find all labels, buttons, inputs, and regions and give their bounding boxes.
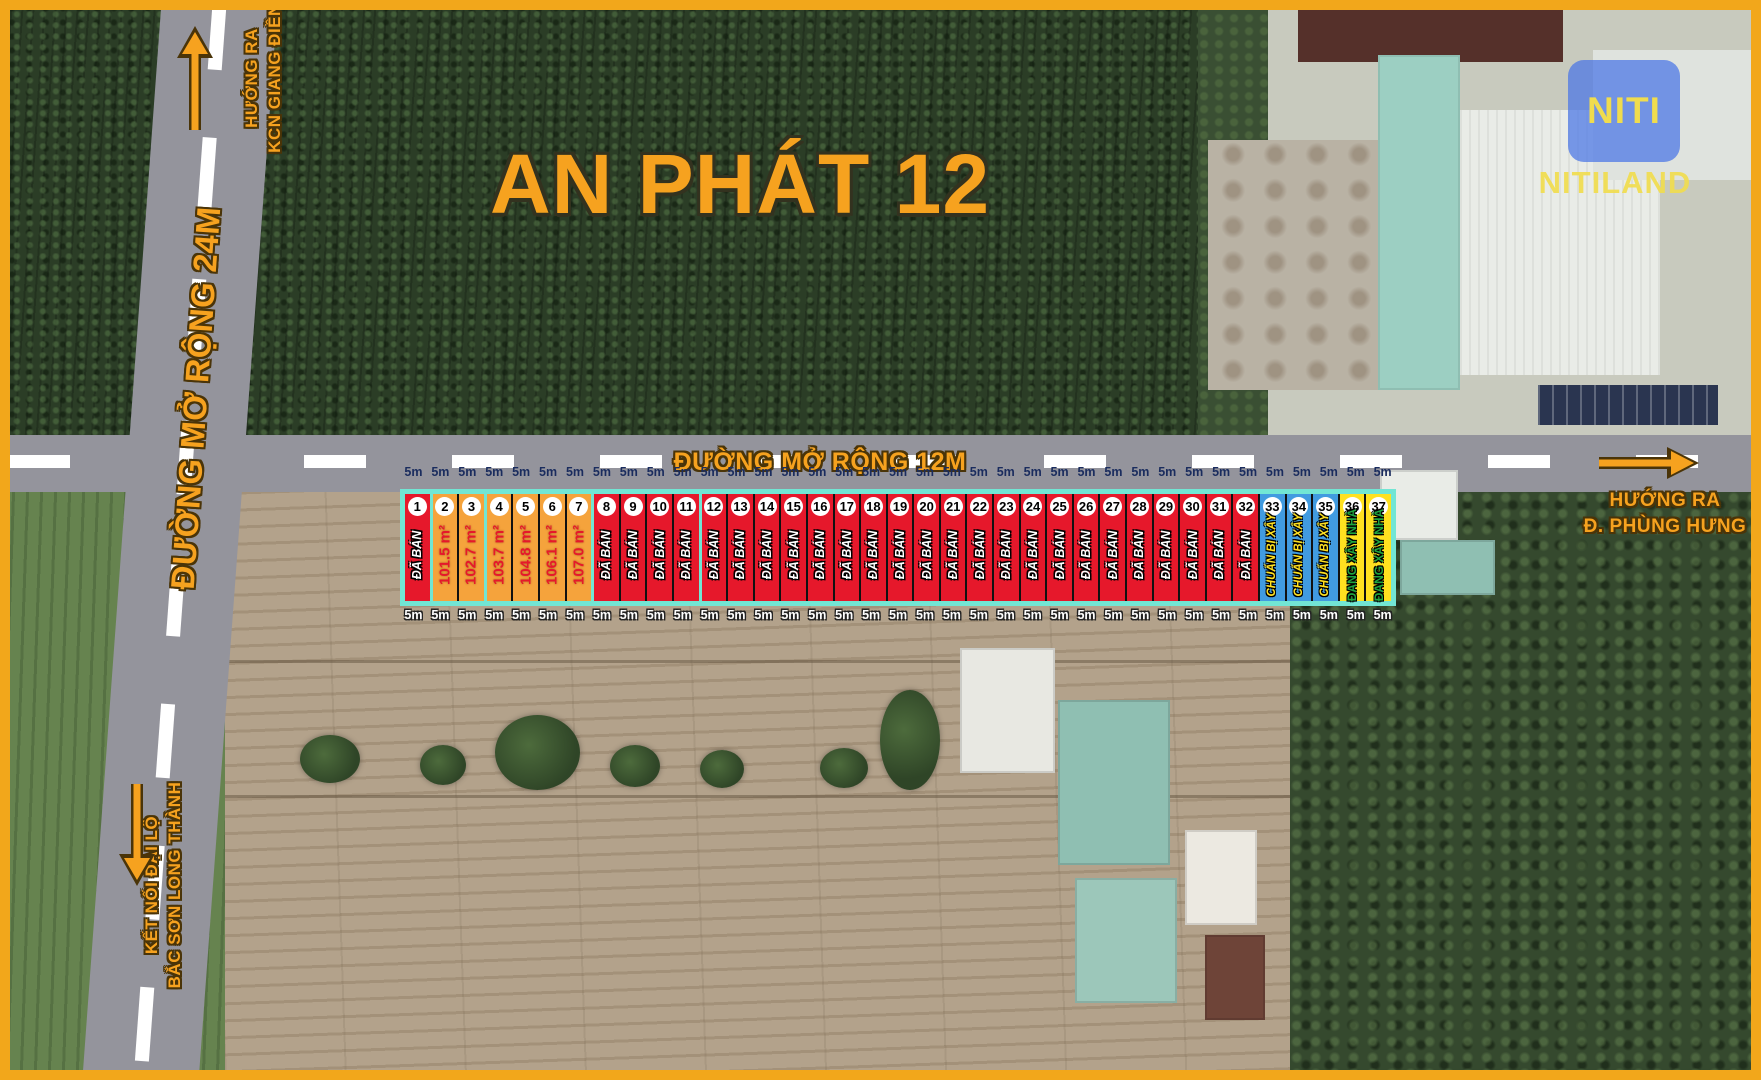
frontage-label: 5m (1019, 465, 1046, 479)
frontage-label: 5m (1127, 608, 1154, 622)
frontage-label: 5m (427, 465, 454, 479)
frontage-label: 5m (1046, 608, 1073, 622)
plot-9: 9ĐÃ BÁN (621, 494, 646, 601)
brand-name: NITILAND (1500, 165, 1730, 201)
arrow-down-icon (114, 780, 160, 890)
plot-status-label: ĐANG XÂY NHÀ (1372, 509, 1386, 601)
frontage-label: 5m (562, 465, 589, 479)
frontage-label: 5m (1315, 465, 1342, 479)
building-roof (1298, 0, 1563, 62)
frontage-label: 5m (508, 608, 535, 622)
plot-status-label: ĐÃ BÁN (1079, 531, 1093, 580)
plot-11: 11ĐÃ BÁN (674, 494, 699, 601)
plot-number: 10 (650, 497, 669, 516)
plot-number: 1 (408, 497, 427, 516)
frontage-label: 5m (1208, 608, 1235, 622)
frontage-label: 5m (777, 465, 804, 479)
frontage-label: 5m (615, 465, 642, 479)
plot-number: 5 (516, 497, 535, 516)
frontage-label: 5m (1073, 465, 1100, 479)
house-roof (1075, 878, 1177, 1003)
plot-number: 17 (837, 497, 856, 516)
frontage-label: 5m (938, 465, 965, 479)
plot-area-label: 106.1 m² (544, 525, 561, 585)
frontage-label: 5m (669, 465, 696, 479)
frontage-label: 5m (804, 465, 831, 479)
plot-26: 26ĐÃ BÁN (1074, 494, 1099, 601)
frontage-label: 5m (696, 465, 723, 479)
plot-number: 12 (704, 497, 723, 516)
plot-35: 35CHUẨN BỊ XÂY (1313, 494, 1338, 601)
plot-number: 21 (944, 497, 963, 516)
plot-status-label: ĐÃ BÁN (999, 531, 1013, 580)
frontage-label: 5m (588, 465, 615, 479)
frontage-label: 5m (912, 465, 939, 479)
plot-29: 29ĐÃ BÁN (1154, 494, 1179, 601)
tree-clump (495, 715, 580, 790)
plot-number: 25 (1050, 497, 1069, 516)
plot-status-label: CHUẨN BỊ XÂY (1319, 513, 1331, 596)
frontage-label: 5m (912, 608, 939, 622)
plot-number: 3 (462, 497, 481, 516)
plot-status-label: ĐÃ BÁN (973, 531, 987, 580)
plot-status-label: ĐÃ BÁN (813, 531, 827, 580)
plot-24: 24ĐÃ BÁN (1021, 494, 1046, 601)
plot-10: 10ĐÃ BÁN (647, 494, 672, 601)
frontage-label: 5m (454, 465, 481, 479)
plot-32: 32ĐÃ BÁN (1233, 494, 1258, 601)
plot-strip: 1ĐÃ BÁN2101.5 m²3102.7 m²4103.7 m²5104.8… (400, 489, 1396, 606)
frontage-label: 5m (454, 608, 481, 622)
plot-18: 18ĐÃ BÁN (861, 494, 886, 601)
frontage-label: 5m (1181, 465, 1208, 479)
plot-23: 23ĐÃ BÁN (994, 494, 1019, 601)
frontage-label: 5m (642, 465, 669, 479)
frontage-label: 5m (1073, 608, 1100, 622)
plot-2: 2101.5 m² (433, 494, 458, 601)
frontage-label: 5m (508, 465, 535, 479)
frontage-label: 5m (1154, 465, 1181, 479)
frontage-label: 5m (723, 465, 750, 479)
plot-status-label: ĐANG XÂY NHÀ (1345, 509, 1359, 601)
plot-5: 5104.8 m² (513, 494, 538, 601)
plot-status-label: ĐÃ BÁN (760, 531, 774, 580)
frontage-label: 5m (615, 608, 642, 622)
plot-status-label: ĐÃ BÁN (1186, 531, 1200, 580)
plot-13: 13ĐÃ BÁN (728, 494, 753, 601)
plot-number: 27 (1103, 497, 1122, 516)
field-boundary (225, 660, 1300, 663)
frontage-label: 5m (858, 465, 885, 479)
frontage-label: 5m (427, 608, 454, 622)
frontage-label: 5m (1019, 608, 1046, 622)
frontage-label: 5m (885, 465, 912, 479)
house-roof (1058, 700, 1170, 865)
plot-status-label: ĐÃ BÁN (599, 531, 613, 580)
frontage-label: 5m (696, 608, 723, 622)
frontage-label: 5m (831, 465, 858, 479)
frontage-label: 5m (858, 608, 885, 622)
plot-number: 29 (1156, 497, 1175, 516)
frontage-label: 5m (1288, 465, 1315, 479)
plot-21: 21ĐÃ BÁN (941, 494, 966, 601)
frontage-label: 5m (1342, 465, 1369, 479)
frontage-label: 5m (481, 608, 508, 622)
logo-text: NITI (1587, 90, 1661, 132)
arrow-right-icon (1595, 444, 1705, 482)
plot-28: 28ĐÃ BÁN (1127, 494, 1152, 601)
plot-status-label: ĐÃ BÁN (679, 531, 693, 580)
plot-number: 31 (1210, 497, 1229, 516)
frontage-label: 5m (723, 608, 750, 622)
frontage-label: 5m (562, 608, 589, 622)
plot-status-label: ĐÃ BÁN (866, 531, 880, 580)
project-title: AN PHÁT 12 (480, 138, 1000, 230)
concrete-yard (1208, 140, 1378, 390)
house-roof (960, 648, 1055, 773)
niti-logo: NITI (1568, 60, 1680, 162)
frontage-label: 5m (831, 608, 858, 622)
frontage-label: 5m (1046, 465, 1073, 479)
plot-status-label: ĐÃ BÁN (1106, 531, 1120, 580)
plot-27: 27ĐÃ BÁN (1100, 494, 1125, 601)
plot-status-label: ĐÃ BÁN (1159, 531, 1173, 580)
frontage-label: 5m (804, 608, 831, 622)
plot-number: 2 (435, 497, 454, 516)
plot-15: 15ĐÃ BÁN (781, 494, 806, 601)
plot-7: 7107.0 m² (567, 494, 592, 601)
plot-status-label: ĐÃ BÁN (893, 531, 907, 580)
plot-1: 1ĐÃ BÁN (405, 494, 430, 601)
frontage-label: 5m (669, 608, 696, 622)
frontage-label: 5m (1208, 465, 1235, 479)
frontage-label: 5m (588, 608, 615, 622)
frontage-label: 5m (777, 608, 804, 622)
plot-area-label: 103.7 m² (491, 525, 508, 585)
plot-14: 14ĐÃ BÁN (755, 494, 780, 601)
house-roof (1400, 540, 1495, 595)
plot-number: 6 (543, 497, 562, 516)
solar-panels (1538, 385, 1718, 425)
plot-status-label: ĐÃ BÁN (733, 531, 747, 580)
plot-number: 30 (1183, 497, 1202, 516)
plot-number: 18 (864, 497, 883, 516)
plot-8: 8ĐÃ BÁN (594, 494, 619, 601)
plot-status-label: ĐÃ BÁN (707, 531, 721, 580)
frontage-label: 5m (992, 465, 1019, 479)
plot-number: 15 (784, 497, 803, 516)
plot-status-label: CHUẨN BỊ XÂY (1293, 513, 1305, 596)
plot-number: 22 (970, 497, 989, 516)
plot-status-label: ĐÃ BÁN (626, 531, 640, 580)
frontage-label: 5m (535, 608, 562, 622)
frontage-row-top: 5m5m5m5m5m5m5m5m5m5m5m5m5m5m5m5m5m5m5m5m… (400, 465, 1396, 479)
house-roof (1185, 830, 1257, 925)
plot-status-label: ĐÃ BÁN (410, 531, 424, 580)
plot-status-label: ĐÃ BÁN (1026, 531, 1040, 580)
plot-6: 6106.1 m² (540, 494, 565, 601)
plot-status-label: CHUẨN BỊ XÂY (1266, 513, 1278, 596)
plot-19: 19ĐÃ BÁN (888, 494, 913, 601)
plot-status-label: ĐÃ BÁN (1239, 531, 1253, 580)
plot-34: 34CHUẨN BỊ XÂY (1287, 494, 1312, 601)
tree-clump (300, 735, 360, 783)
plot-20: 20ĐÃ BÁN (914, 494, 939, 601)
plot-number: 20 (917, 497, 936, 516)
frontage-label: 5m (1235, 465, 1262, 479)
frontage-label: 5m (535, 465, 562, 479)
frontage-label: 5m (1288, 608, 1315, 622)
plot-status-label: ĐÃ BÁN (1132, 531, 1146, 580)
frontage-label: 5m (1100, 608, 1127, 622)
frontage-label: 5m (750, 465, 777, 479)
plot-area-label: 101.5 m² (436, 525, 453, 585)
frontage-label: 5m (1100, 465, 1127, 479)
frontage-label: 5m (1315, 608, 1342, 622)
plot-17: 17ĐÃ BÁN (835, 494, 860, 601)
frontage-label: 5m (1154, 608, 1181, 622)
plot-number: 13 (731, 497, 750, 516)
direction-kcn-giang-dien: HƯỚNG RA KCN GIANG ĐIỀN (240, 3, 286, 153)
plot-status-label: ĐÃ BÁN (840, 531, 854, 580)
arrow-up-icon (172, 20, 218, 136)
plot-12: 12ĐÃ BÁN (702, 494, 727, 601)
plot-number: 7 (569, 497, 588, 516)
plot-number: 4 (490, 497, 509, 516)
plot-16: 16ĐÃ BÁN (808, 494, 833, 601)
plot-number: 14 (758, 497, 777, 516)
frontage-row-bottom: 5m5m5m5m5m5m5m5m5m5m5m5m5m5m5m5m5m5m5m5m… (400, 608, 1396, 622)
plot-number: 11 (677, 497, 696, 516)
tree-clump (610, 745, 660, 787)
frontage-label: 5m (1127, 465, 1154, 479)
plot-area-label: 104.8 m² (517, 525, 534, 585)
tree-clump (820, 748, 868, 788)
frontage-label: 5m (1369, 608, 1396, 622)
plot-31: 31ĐÃ BÁN (1207, 494, 1232, 601)
frontage-label: 5m (1262, 465, 1289, 479)
frontage-label: 5m (1181, 608, 1208, 622)
plot-37: 37ĐANG XÂY NHÀ (1366, 494, 1391, 601)
plot-number: 24 (1023, 497, 1042, 516)
frontage-label: 5m (992, 608, 1019, 622)
frontage-label: 5m (400, 608, 427, 622)
plot-number: 8 (597, 497, 616, 516)
site-plan-canvas: AN PHÁT 12 NITI NITILAND HƯỚNG RA KCN GI… (0, 0, 1761, 1080)
plot-number: 19 (890, 497, 909, 516)
frontage-label: 5m (938, 608, 965, 622)
house-roof (1205, 935, 1265, 1020)
plot-number: 28 (1130, 497, 1149, 516)
tree-clump (420, 745, 466, 785)
plot-number: 16 (811, 497, 830, 516)
plot-status-label: ĐÃ BÁN (1212, 531, 1226, 580)
plot-25: 25ĐÃ BÁN (1047, 494, 1072, 601)
plot-36: 36ĐANG XÂY NHÀ (1340, 494, 1365, 601)
frontage-label: 5m (1369, 465, 1396, 479)
direction-phung-hung: HƯỚNG RA Đ. PHÙNG HƯNG (1560, 488, 1761, 540)
plot-status-label: ĐÃ BÁN (653, 531, 667, 580)
tree-clump (880, 690, 940, 790)
frontage-label: 5m (1342, 608, 1369, 622)
plot-area-label: 107.0 m² (570, 525, 587, 585)
plot-status-label: ĐÃ BÁN (920, 531, 934, 580)
frontage-label: 5m (1235, 608, 1262, 622)
plot-area-label: 102.7 m² (463, 525, 480, 585)
plot-number: 23 (997, 497, 1016, 516)
frontage-label: 5m (642, 608, 669, 622)
frontage-label: 5m (481, 465, 508, 479)
plot-status-label: ĐÃ BÁN (1053, 531, 1067, 580)
plot-number: 26 (1077, 497, 1096, 516)
plot-status-label: ĐÃ BÁN (946, 531, 960, 580)
frontage-label: 5m (1262, 608, 1289, 622)
plot-22: 22ĐÃ BÁN (967, 494, 992, 601)
plot-4: 4103.7 m² (487, 494, 512, 601)
frontage-label: 5m (965, 465, 992, 479)
plot-status-label: ĐÃ BÁN (787, 531, 801, 580)
building-roof (1378, 55, 1460, 390)
plot-33: 33CHUẨN BỊ XÂY (1260, 494, 1285, 601)
tree-clump (700, 750, 744, 788)
frontage-label: 5m (750, 608, 777, 622)
plots-row: 1ĐÃ BÁN2101.5 m²3102.7 m²4103.7 m²5104.8… (405, 494, 1391, 601)
plot-number: 9 (624, 497, 643, 516)
plot-30: 30ĐÃ BÁN (1180, 494, 1205, 601)
frontage-label: 5m (965, 608, 992, 622)
plot-3: 3102.7 m² (459, 494, 484, 601)
plot-number: 32 (1236, 497, 1255, 516)
frontage-label: 5m (400, 465, 427, 479)
frontage-label: 5m (885, 608, 912, 622)
